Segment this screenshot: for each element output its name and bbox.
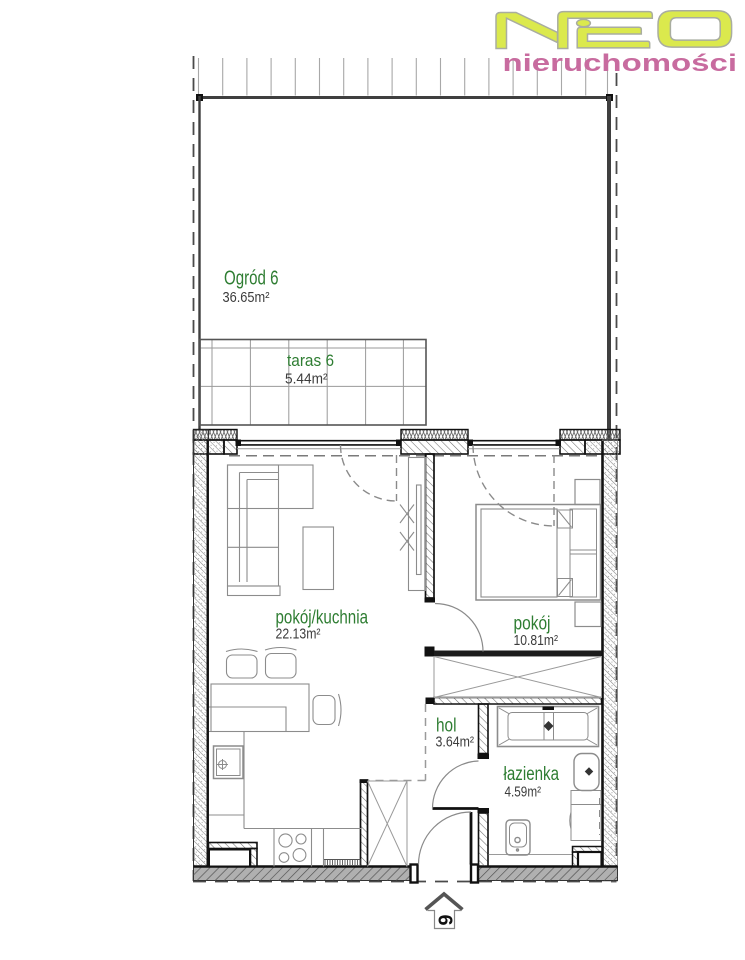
svg-text:taras 6: taras 6: [287, 352, 334, 370]
svg-text:22.13m²: 22.13m²: [276, 627, 321, 643]
svg-text:pokój/kuchnia: pokój/kuchnia: [276, 608, 369, 629]
svg-text:6: 6: [434, 914, 456, 925]
svg-text:hol: hol: [436, 716, 457, 737]
svg-text:5.44m²: 5.44m²: [285, 372, 328, 388]
svg-text:4.59m²: 4.59m²: [505, 785, 542, 801]
svg-text:Ogród 6: Ogród 6: [224, 268, 279, 290]
svg-text:nieruchomości: nieruchomości: [503, 50, 738, 77]
svg-text:pokój: pokój: [514, 614, 551, 635]
svg-text:3.64m²: 3.64m²: [436, 735, 475, 751]
svg-text:36.65m²: 36.65m²: [223, 290, 270, 306]
svg-text:10.81m²: 10.81m²: [514, 633, 559, 649]
svg-text:łazienka: łazienka: [504, 764, 560, 785]
